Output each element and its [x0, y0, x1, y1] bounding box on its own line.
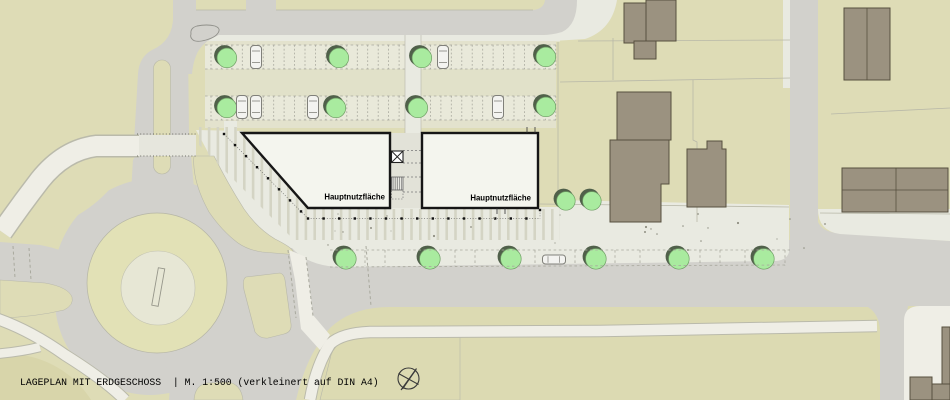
svg-text:LAGEPLAN MIT ERDGESCHOSS | M.: LAGEPLAN MIT ERDGESCHOSS | M. 1:500 (ver… — [20, 377, 379, 388]
svg-text:Hauptnutzfläche: Hauptnutzfläche — [324, 193, 385, 202]
svg-text:Hauptnutzfläche: Hauptnutzfläche — [470, 194, 531, 203]
